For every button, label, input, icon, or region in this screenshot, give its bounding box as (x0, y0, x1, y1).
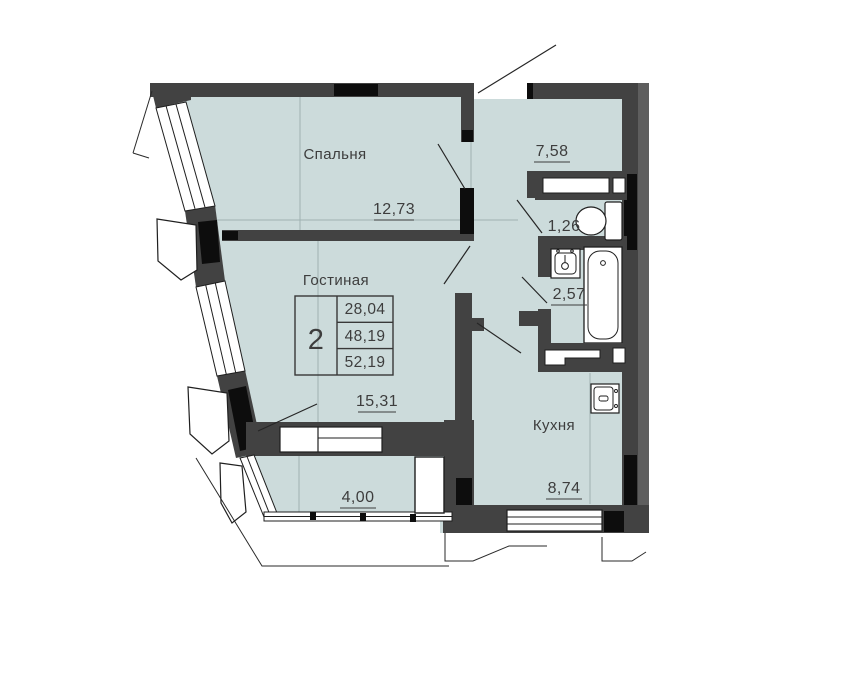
kitchen-label: Кухня (533, 417, 575, 434)
floor-plan-page: 2 28,04 48,19 52,19 Спальня 12,73 Гостин… (0, 0, 841, 700)
kitchen-sink-knob (615, 405, 618, 408)
sink-tap (557, 250, 560, 253)
glazing-mullion (410, 514, 416, 522)
wall-bedroom-living (222, 230, 474, 241)
wall-right-outer-band (638, 83, 649, 533)
kitchen-sink-icon (591, 384, 619, 413)
sink-drain (562, 263, 569, 270)
wall-top-black-segment (334, 84, 378, 96)
toilet-tank (605, 202, 622, 240)
bathroom-cabinet-icon (538, 343, 627, 372)
wall-bath-left-lower (538, 309, 551, 345)
living-area-value: 28,04 (345, 301, 386, 318)
sink-tap (571, 250, 574, 253)
kitchen-sink-tap (599, 396, 608, 401)
wall-right-black-kitchen (624, 455, 637, 508)
hallway-area: 7,58 (536, 143, 569, 160)
wall-hallway-black-cap (527, 83, 533, 99)
toilet-bowl (576, 207, 606, 235)
living-balcony-window (280, 427, 382, 452)
bathtub-drain (601, 261, 606, 266)
hallway-wardrobe-icon (535, 171, 627, 200)
rooms-count: 2 (308, 324, 325, 356)
glazing-mullion (360, 513, 366, 521)
wall-kitchen-notch (472, 318, 484, 331)
wall-bath-arm (519, 311, 538, 326)
kitchen-area: 8,74 (548, 480, 581, 497)
cabinet-right-box (613, 348, 625, 363)
total-area-value: 52,19 (345, 354, 386, 371)
facade-bracket-left (445, 533, 547, 561)
wall-kitchen-bottom-black (604, 511, 624, 532)
living-area: 15,31 (356, 393, 398, 410)
facade-line-topleft (133, 91, 152, 153)
facade-bracket-right (602, 537, 646, 561)
wardrobe-inner-right (613, 178, 625, 193)
wall-bedroom-living-black-end (222, 231, 238, 240)
balcony-door-leaf (415, 457, 444, 513)
bathtub-icon (584, 247, 622, 343)
bedroom-area: 12,73 (373, 201, 415, 218)
floor-area-value: 48,19 (345, 328, 386, 345)
entrance-opening (474, 80, 527, 99)
bathroom-sink-icon (551, 249, 580, 278)
bathroom-area: 2,57 (553, 286, 586, 303)
bay-outline-2 (188, 387, 229, 454)
kitchen-window (507, 510, 602, 531)
bay-outline-1 (157, 219, 197, 280)
wall-bedroom-door-stub-black (462, 130, 473, 142)
kitchen-sink-knob (615, 390, 618, 393)
wardrobe-inner (543, 178, 609, 193)
floor-plan: 2 28,04 48,19 52,19 Спальня 12,73 Гостин… (0, 0, 841, 700)
wall-top-bedroom (150, 83, 474, 97)
wall-bath-left-upper (538, 243, 551, 277)
facade-line-topleft-foot (133, 153, 149, 158)
balcony-area: 4,00 (342, 489, 375, 506)
glazing-mullion (310, 512, 316, 520)
living-label: Гостиная (303, 272, 369, 289)
wall-bedroom-jamb-black (460, 188, 474, 234)
toilet-area: 1,26 (548, 218, 581, 235)
bay-outline-3 (220, 463, 246, 523)
bedroom-label: Спальня (303, 146, 366, 163)
